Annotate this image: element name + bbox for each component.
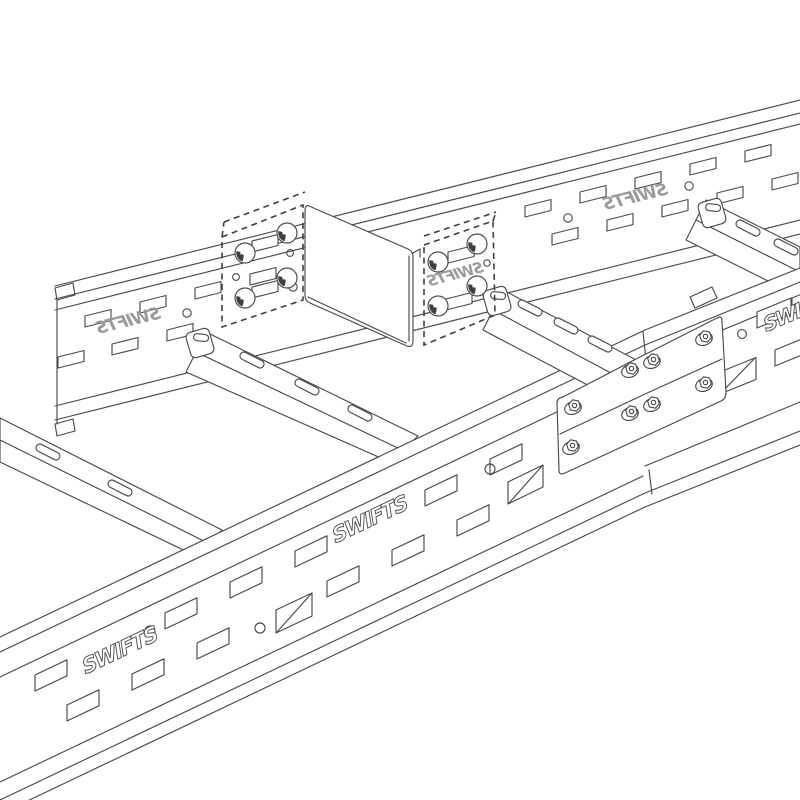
coupler-bolt-head	[277, 268, 297, 288]
coupler-bolt-head	[428, 296, 448, 316]
ladder-drawing: SWIFTS SWIFTS	[0, 0, 800, 800]
technical-illustration: SWIFTS SWIFTS	[0, 0, 800, 800]
coupler-bolt-head	[235, 288, 255, 308]
coupler-bolt-head	[467, 234, 487, 254]
coupler-bolt-head	[277, 223, 297, 243]
rung-left	[0, 418, 222, 557]
coupler-bolt-head	[235, 243, 255, 263]
